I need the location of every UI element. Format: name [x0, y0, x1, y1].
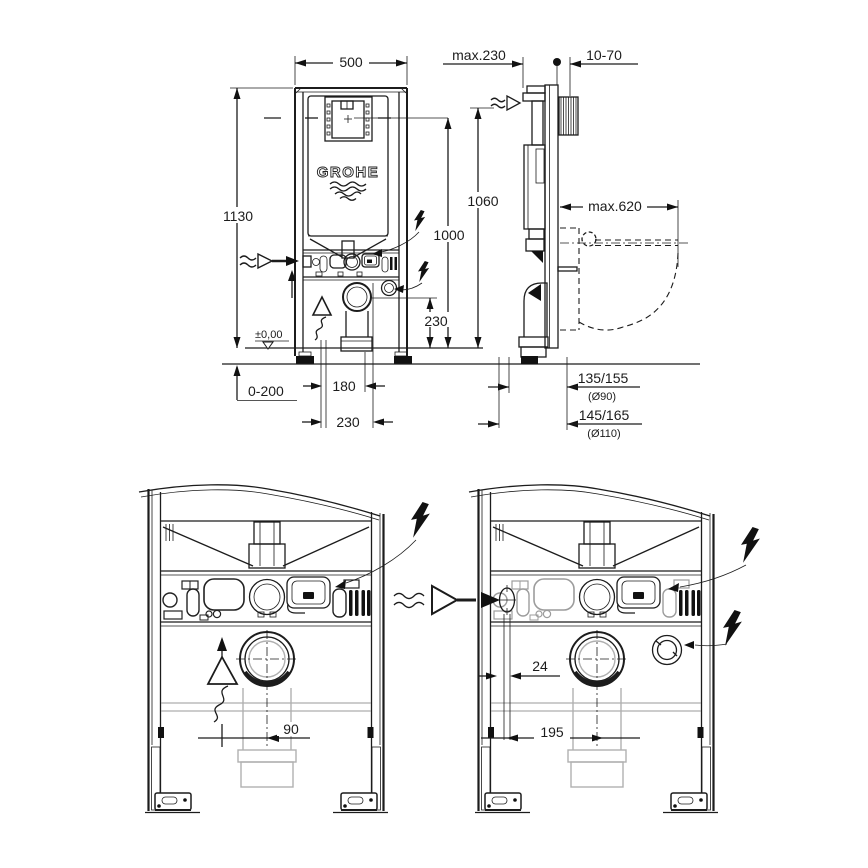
dim-drain-offset-195: 195 [481, 724, 640, 742]
drain-outlet [341, 283, 372, 351]
floor-level-marker: ±0,00 [255, 329, 289, 349]
dim-supply-height-label: 1060 [467, 193, 498, 209]
dim-bowl-clearance-label: max.620 [588, 198, 642, 214]
floor-level-label: ±0,00 [255, 329, 282, 341]
wall-range-block [559, 97, 578, 135]
dim-supply-height: 1060 [463, 108, 503, 348]
dim-front-height: 1130 [220, 88, 293, 348]
dim-bowl-clearance: max.620 [560, 198, 678, 267]
vent-symbol-icon [208, 637, 237, 722]
dim-frame-depth-label: max.230 [452, 47, 506, 63]
bottom-left-view: 90 [139, 485, 430, 813]
dim-drain-height-label: 230 [424, 313, 448, 329]
dim-inlet-offset-24-label: 24 [532, 658, 548, 674]
dim-drain-offset-195-label: 195 [540, 724, 564, 740]
flush-plate-opening [264, 97, 391, 141]
installation-frame-drawing: GROHE [0, 0, 868, 868]
dim-front-width: 500 [295, 53, 407, 85]
dim-drain-height: 230 [370, 298, 453, 348]
dim-offset-180-label: 180 [332, 378, 356, 394]
toilet-bowl-outline [560, 228, 690, 330]
water-supply-arrow-icon [394, 586, 500, 614]
dim-outlet-110-dia-label: (Ø110) [587, 428, 620, 440]
brand-logo-text: GROHE [317, 164, 380, 181]
dim-floor-buildup: 0-200 [234, 365, 298, 401]
logo-waves-icon [330, 182, 366, 200]
frame-feet [296, 352, 412, 364]
dim-drain-offset-90: 90 [198, 721, 310, 747]
dim-front-height-label: 1130 [223, 208, 253, 224]
dim-outlet-90-label: 135/155 [578, 370, 629, 386]
dim-front-width-label: 500 [339, 54, 363, 70]
electrical-connector [653, 636, 682, 665]
brand-logo: GROHE [317, 164, 380, 200]
technical-drawing-page: GROHE [0, 0, 868, 868]
dim-outlet-90-dia-label: (Ø90) [588, 391, 616, 403]
fixture-band [303, 250, 399, 280]
side-view: max.230 10-70 1060 max.620 1 [443, 47, 690, 440]
dim-offset-230-label: 230 [336, 414, 360, 430]
electrical-connector [382, 281, 397, 296]
dim-outlet-110-label: 145/165 [579, 407, 630, 423]
water-inlet-connection [498, 585, 516, 740]
dim-offset-230: 230 [302, 283, 393, 430]
water-supply-arrow-icon [491, 96, 520, 110]
dim-frame-depth: max.230 [443, 47, 561, 88]
dim-floor-buildup-label: 0-200 [248, 383, 284, 399]
side-drain-elbow [519, 283, 548, 364]
dim-wall-distance-label: 10-70 [586, 47, 622, 63]
bottom-right-view: 24 195 [394, 485, 760, 813]
dim-actuation-height-label: 1000 [433, 227, 464, 243]
dim-wall-distance: 10-70 [570, 47, 638, 96]
water-supply-arrow-icon [240, 254, 299, 268]
dim-drain-offset-90-label: 90 [283, 721, 299, 737]
